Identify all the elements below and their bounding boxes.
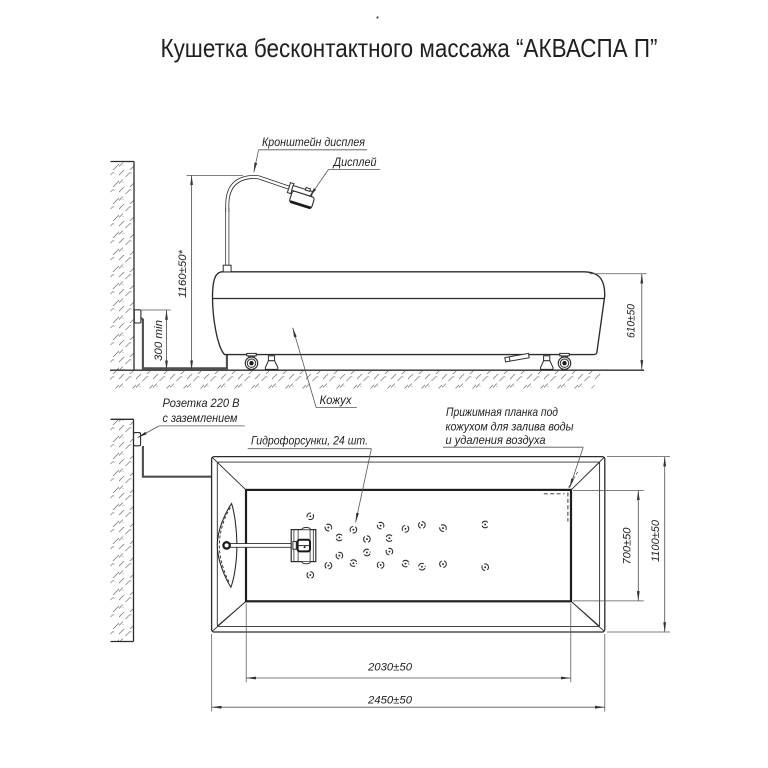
svg-text:Кушетка бесконтактного массажа: Кушетка бесконтактного массажа “АКВАСПА … bbox=[161, 33, 658, 63]
svg-text:1160±50*: 1160±50* bbox=[177, 249, 189, 298]
svg-text:Кожух: Кожух bbox=[320, 393, 353, 407]
svg-text:Розетка 220 В: Розетка 220 В bbox=[163, 396, 240, 410]
svg-text:Дисплей: Дисплей bbox=[332, 155, 377, 169]
svg-text:с заземлением: с заземлением bbox=[163, 411, 238, 425]
svg-text:300 min: 300 min bbox=[153, 320, 165, 361]
svg-text:2030±50: 2030±50 bbox=[367, 662, 413, 674]
svg-text:1100±50: 1100±50 bbox=[650, 519, 662, 562]
svg-text:Прижимная планка под: Прижимная планка под bbox=[446, 405, 558, 419]
svg-text:и удаления воздуха: и удаления воздуха bbox=[446, 433, 546, 447]
svg-text:610±50: 610±50 bbox=[626, 303, 638, 338]
svg-text:2450±50: 2450±50 bbox=[367, 695, 413, 707]
svg-text:Гидрофорсунки, 24 шт.: Гидрофорсунки, 24 шт. bbox=[251, 434, 368, 448]
svg-text:700±50: 700±50 bbox=[622, 527, 634, 565]
svg-text:Кронштейн дисплея: Кронштейн дисплея bbox=[262, 135, 366, 149]
svg-text:кожухом для залива воды: кожухом для залива воды bbox=[446, 420, 574, 434]
